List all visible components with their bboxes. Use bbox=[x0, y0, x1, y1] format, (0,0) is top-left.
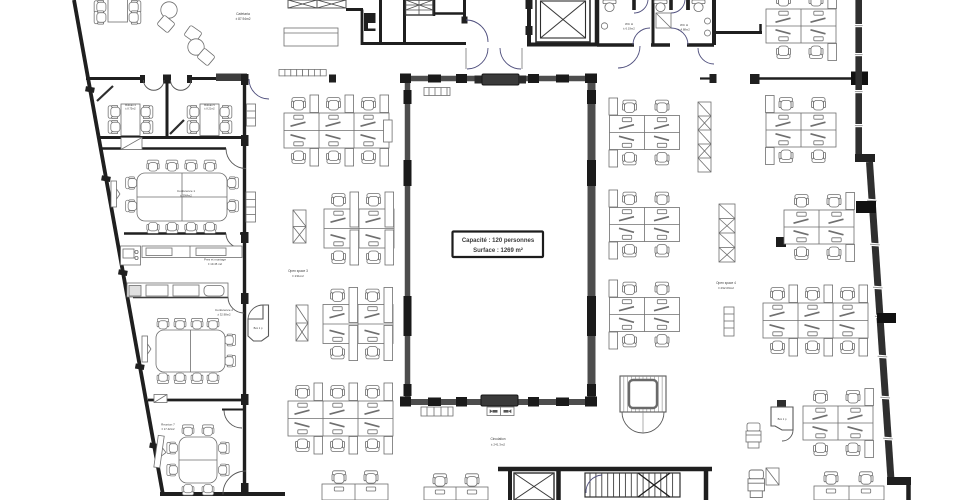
svg-text:± 231m2: ± 231m2 bbox=[292, 274, 304, 278]
svg-text:Bureau 5: Bureau 5 bbox=[204, 103, 215, 107]
svg-text:± 292.09m2: ± 292.09m2 bbox=[718, 286, 734, 290]
svg-text:± 87.94m2: ± 87.94m2 bbox=[235, 17, 250, 21]
svg-text:± 32.98m2: ± 32.98m2 bbox=[217, 313, 231, 317]
svg-text:Circulation: Circulation bbox=[490, 437, 505, 441]
svg-text:Capacité : 120 personnes: Capacité : 120 personnes bbox=[462, 238, 535, 244]
svg-text:Box 1 p: Box 1 p bbox=[778, 417, 787, 421]
svg-text:Conference 1: Conference 1 bbox=[177, 189, 195, 193]
svg-text:± 241.3m2: ± 241.3m2 bbox=[491, 443, 505, 447]
svg-text:Surface : 1269 m²: Surface : 1269 m² bbox=[473, 247, 523, 254]
svg-text:Open space 3: Open space 3 bbox=[288, 269, 308, 273]
svg-text:± 39Mm2: ± 39Mm2 bbox=[180, 194, 192, 198]
svg-text:± 17.42m2: ± 17.42m2 bbox=[161, 427, 175, 431]
svg-text:± 19.45 m2: ± 19.45 m2 bbox=[208, 262, 222, 266]
svg-text:WC H: WC H bbox=[680, 23, 688, 27]
svg-text:Pres et montage: Pres et montage bbox=[204, 258, 226, 262]
svg-text:Open space 4: Open space 4 bbox=[716, 281, 736, 285]
svg-text:± 8.75m2: ± 8.75m2 bbox=[125, 108, 136, 111]
svg-text:± 6.19m2: ± 6.19m2 bbox=[623, 27, 635, 31]
svg-text:Cafetaria: Cafetaria bbox=[236, 12, 250, 16]
svg-text:WC H: WC H bbox=[625, 22, 633, 26]
svg-text:Box 1 p: Box 1 p bbox=[254, 326, 263, 330]
svg-text:Bureau 4: Bureau 4 bbox=[125, 103, 136, 107]
svg-text:± 8.21m2: ± 8.21m2 bbox=[204, 108, 215, 111]
svg-text:Reunion 7: Reunion 7 bbox=[161, 423, 175, 427]
svg-text:Conference 2: Conference 2 bbox=[215, 308, 233, 312]
